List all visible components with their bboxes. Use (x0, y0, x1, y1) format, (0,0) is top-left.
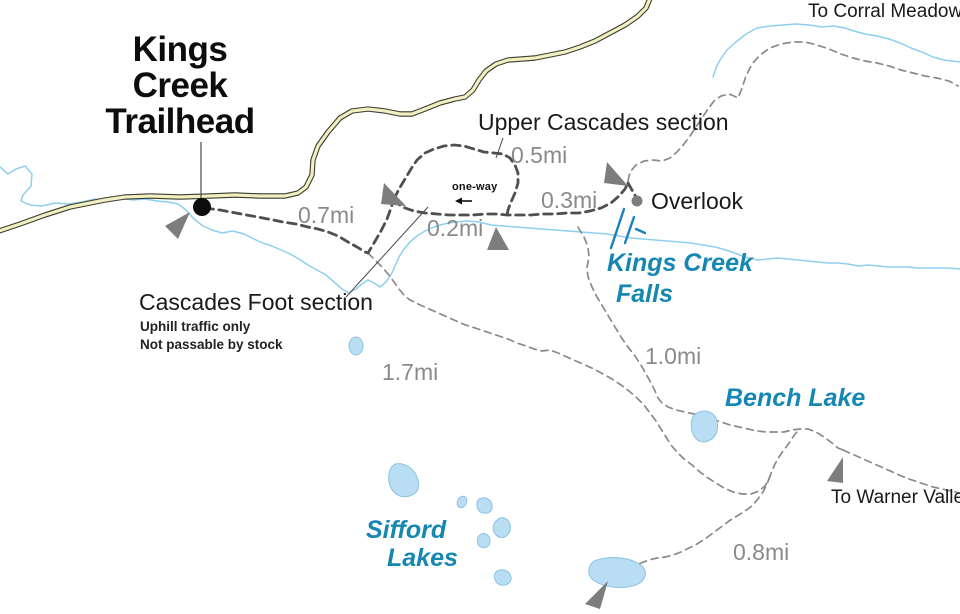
marker-loop-junction (381, 183, 406, 206)
marker-oneway (487, 227, 509, 250)
overlook-dot (632, 196, 643, 207)
marker-warner-junction (827, 457, 843, 483)
kings-creek-trail-map: Kings Creek Trailhead To Corral Meadow U… (0, 0, 960, 614)
label-kings-creek-falls-line1: Kings Creek (607, 250, 753, 277)
label-kings-creek-falls-line2: Falls (616, 281, 673, 308)
sifford-lake-large (389, 464, 419, 497)
label-bench-lake: Bench Lake (725, 385, 865, 412)
label-one-way: one-way (452, 182, 497, 194)
sifford-lake-oval (455, 495, 468, 510)
sifford-lake-3 (477, 533, 490, 547)
map-title-line3: Trailhead (60, 104, 300, 140)
map-title: Kings Creek Trailhead (60, 32, 300, 140)
map-title-line2: Creek (60, 68, 300, 104)
marker-sifford (585, 581, 608, 609)
trail-upper-cascades-loop (394, 145, 518, 215)
distance-upper-cascades-loop: 0.5mi (511, 143, 567, 168)
label-stock-note: Not passable by stock (140, 338, 283, 353)
label-cascades-foot-section: Cascades Foot section (139, 290, 373, 315)
label-to-warner-valley: To Warner Valley (831, 488, 960, 509)
marker-overlook-junction (604, 162, 628, 186)
label-upper-cascades-section: Upper Cascades section (478, 110, 729, 135)
trailside-lake (589, 558, 646, 588)
distance-falls-to-bench-lake: 1.0mi (645, 344, 701, 369)
one-way-arrow-icon (455, 198, 472, 205)
label-sifford-lakes-line1: Sifford (366, 517, 446, 544)
distance-sifford-to-bench: 0.8mi (733, 540, 789, 565)
sifford-lake-bean (493, 518, 510, 538)
cascades-foot-leader-line (346, 207, 428, 297)
distance-trailhead-to-cascades: 0.7mi (298, 203, 354, 228)
falls-symbol (611, 209, 645, 248)
label-uphill-note: Uphill traffic only (140, 320, 250, 335)
sifford-lake-4 (494, 570, 511, 585)
small-pond (349, 337, 363, 355)
map-title-line1: Kings (60, 32, 300, 68)
label-to-corral-meadow: To Corral Meadow (808, 2, 958, 23)
sifford-lake-2 (477, 498, 492, 513)
marker-trailhead (165, 212, 190, 239)
label-sifford-lakes-line2: Lakes (387, 545, 458, 572)
label-overlook: Overlook (651, 189, 743, 214)
trailhead-dot (193, 198, 211, 216)
distance-cascades-to-overlook: 0.3mi (541, 188, 597, 213)
distance-one-way-section: 0.2mi (427, 216, 483, 241)
distance-cascades-to-sifford: 1.7mi (382, 360, 438, 385)
bench-lake (691, 411, 717, 442)
